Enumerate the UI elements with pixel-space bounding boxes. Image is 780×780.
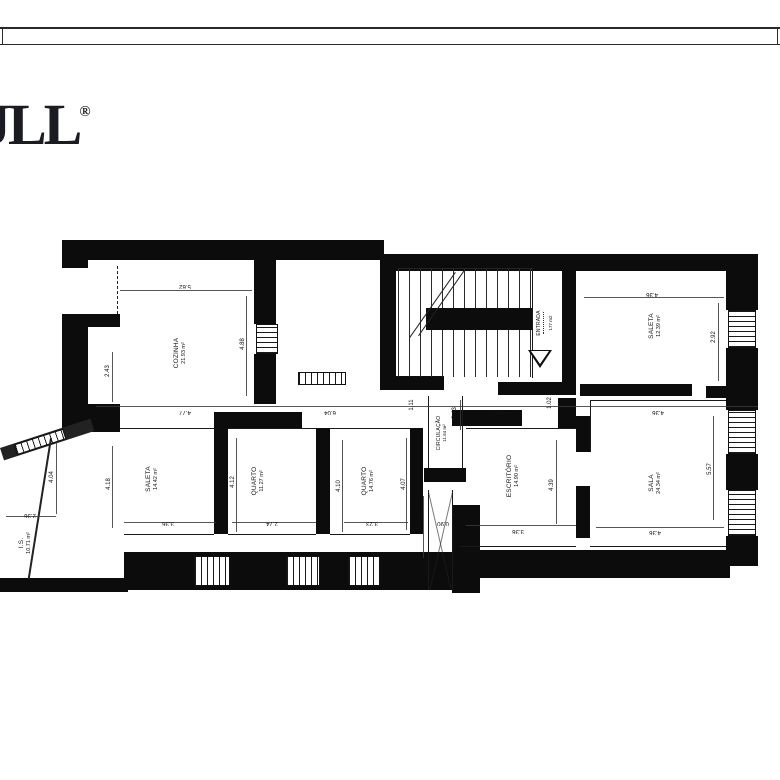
room-area: 11.64 m²: [442, 424, 448, 441]
wall: [706, 386, 728, 398]
dimension-line: [466, 525, 576, 526]
dimension-label: 5.62: [173, 283, 197, 289]
wall: [62, 314, 88, 432]
partition-line: [590, 400, 726, 401]
partition-line: [466, 428, 576, 429]
illegible-text-line: [543, 312, 547, 334]
dimension-label: 2.43: [105, 359, 111, 383]
room-area: 12.39 m²: [656, 315, 663, 337]
partition-line: [228, 428, 316, 429]
dimension-label: 4.39: [549, 473, 555, 497]
dimension-line: [112, 352, 113, 402]
room-label: CIRCULAÇÃO 11.64 m²: [433, 398, 451, 468]
wall: [460, 550, 730, 578]
room-label: QUARTO 11.27 m²: [249, 446, 267, 516]
room-area: 177 m2: [548, 316, 554, 331]
dimension-label: 3.09: [416, 512, 422, 536]
dashed-opening: [117, 266, 118, 314]
dimension-label: 6.04: [318, 409, 342, 415]
room-name: SALETA: [145, 466, 153, 492]
room-name: QUARTO: [361, 467, 369, 496]
dimension-label: 3.23: [360, 520, 384, 526]
stair-landing: [426, 308, 532, 330]
dimension-label: 5.57: [707, 457, 713, 481]
dimension-label: 4.04: [49, 465, 55, 489]
dimension-label: 4.77: [173, 409, 197, 415]
dimension-label: 2.74: [260, 520, 284, 526]
dimension-label: 4.10: [336, 474, 342, 498]
room-name: COZINHA: [173, 338, 181, 369]
dimension-label: 4.18: [106, 472, 112, 496]
room-label: COZINHA 21.93 m²: [171, 318, 189, 388]
wall: [726, 536, 758, 566]
dimension-line: [246, 296, 247, 396]
dimension-label: 2.43: [452, 401, 458, 425]
wall: [316, 428, 330, 534]
dimension-line: [460, 400, 461, 430]
dimension-line: [342, 440, 343, 532]
wall: [558, 398, 576, 428]
dimension-label: 4.51: [488, 409, 512, 415]
dimension-label: 4.88: [240, 332, 246, 356]
window: [256, 324, 278, 354]
window: [728, 310, 756, 348]
dimension-label: 4.12: [230, 470, 236, 494]
partition-line: [330, 428, 410, 429]
dimension-label: 4.07: [401, 472, 407, 496]
wall: [380, 376, 444, 390]
wall: [576, 416, 590, 452]
partition-line: [330, 534, 410, 535]
floor-plan: 5.62 4.88 2.43 4.77 6.04 1.11 4.51 1.02 …: [0, 0, 780, 780]
room-label: ESCRITÓRIO 14.90 m²: [504, 441, 522, 511]
dimension-line: [236, 438, 237, 532]
room-area: 10.71 m²: [26, 532, 33, 554]
wall: [254, 260, 276, 324]
dimension-label: 1.11: [409, 393, 415, 417]
dimension-label: 4.36: [646, 409, 670, 415]
wall: [424, 468, 466, 482]
wall: [726, 348, 758, 394]
wall: [0, 578, 128, 592]
room-area: 14.76 m²: [369, 470, 376, 492]
room-label: ENTRADA 177 m2: [536, 288, 554, 358]
dimension-line: [96, 406, 758, 407]
wall: [498, 382, 576, 395]
wall: [88, 314, 120, 327]
window: [298, 372, 346, 385]
entrance-arrow-icon: [531, 351, 549, 364]
room-name: SALETA: [648, 313, 656, 339]
room-name: SALA: [648, 474, 656, 491]
dimension-label: 1.02: [547, 391, 553, 415]
dimension-line: [718, 303, 719, 381]
room-label: SALA 24.34 m²: [646, 448, 664, 518]
room-area: 24.34 m²: [656, 472, 663, 494]
dimension-line: [120, 290, 252, 291]
wall: [214, 412, 302, 428]
room-area: 14.42 m²: [153, 468, 160, 490]
dimension-line: [56, 442, 57, 514]
wall: [62, 240, 88, 268]
shaft-outline: [452, 490, 453, 590]
room-label: SALETA 12.39 m²: [646, 291, 664, 361]
dimension-line: [596, 527, 724, 528]
room-name: ENTRADA: [536, 310, 542, 335]
room-label: SALETA 14.42 m²: [143, 444, 161, 514]
partition-line: [124, 534, 214, 535]
room-area: 21.93 m²: [181, 342, 188, 364]
wall: [726, 266, 758, 310]
dimension-line: [112, 446, 113, 528]
window: [728, 490, 756, 536]
partition-line: [460, 546, 576, 547]
room-area: 11.27 m²: [259, 470, 266, 491]
room-name: QUARTO: [251, 467, 259, 496]
room-label: I.S. 10.71 m²: [16, 508, 34, 578]
window: [14, 429, 67, 456]
dimension-line: [556, 440, 557, 524]
wall: [562, 262, 576, 392]
window: [286, 556, 320, 586]
wall: [576, 486, 590, 538]
room-name: ESCRITÓRIO: [506, 455, 514, 497]
window: [348, 556, 380, 586]
room-area: 14.90 m²: [514, 465, 521, 487]
dimension-label: 2.92: [711, 325, 717, 349]
wall: [214, 428, 228, 534]
dimension-line: [713, 416, 714, 520]
wall: [580, 384, 692, 396]
dimension-label: 0.90: [431, 520, 455, 526]
wall: [254, 354, 276, 404]
partition-line: [590, 546, 726, 547]
dimension-label: 3.36: [156, 520, 180, 526]
shaft-outline: [428, 490, 429, 590]
window: [728, 410, 756, 454]
dimension-label: 3.36: [506, 528, 530, 534]
partition-line: [120, 428, 214, 429]
room-name: I.S.: [18, 538, 26, 549]
wall: [726, 394, 758, 410]
partition-line: [590, 400, 591, 452]
window: [194, 556, 230, 586]
dimension-label: 4.36: [643, 529, 667, 535]
partition-line: [228, 534, 316, 535]
dimension-line: [423, 496, 424, 558]
wall: [62, 240, 384, 260]
wall: [380, 254, 396, 388]
wall: [726, 454, 758, 490]
room-label: QUARTO 14.76 m²: [359, 446, 377, 516]
